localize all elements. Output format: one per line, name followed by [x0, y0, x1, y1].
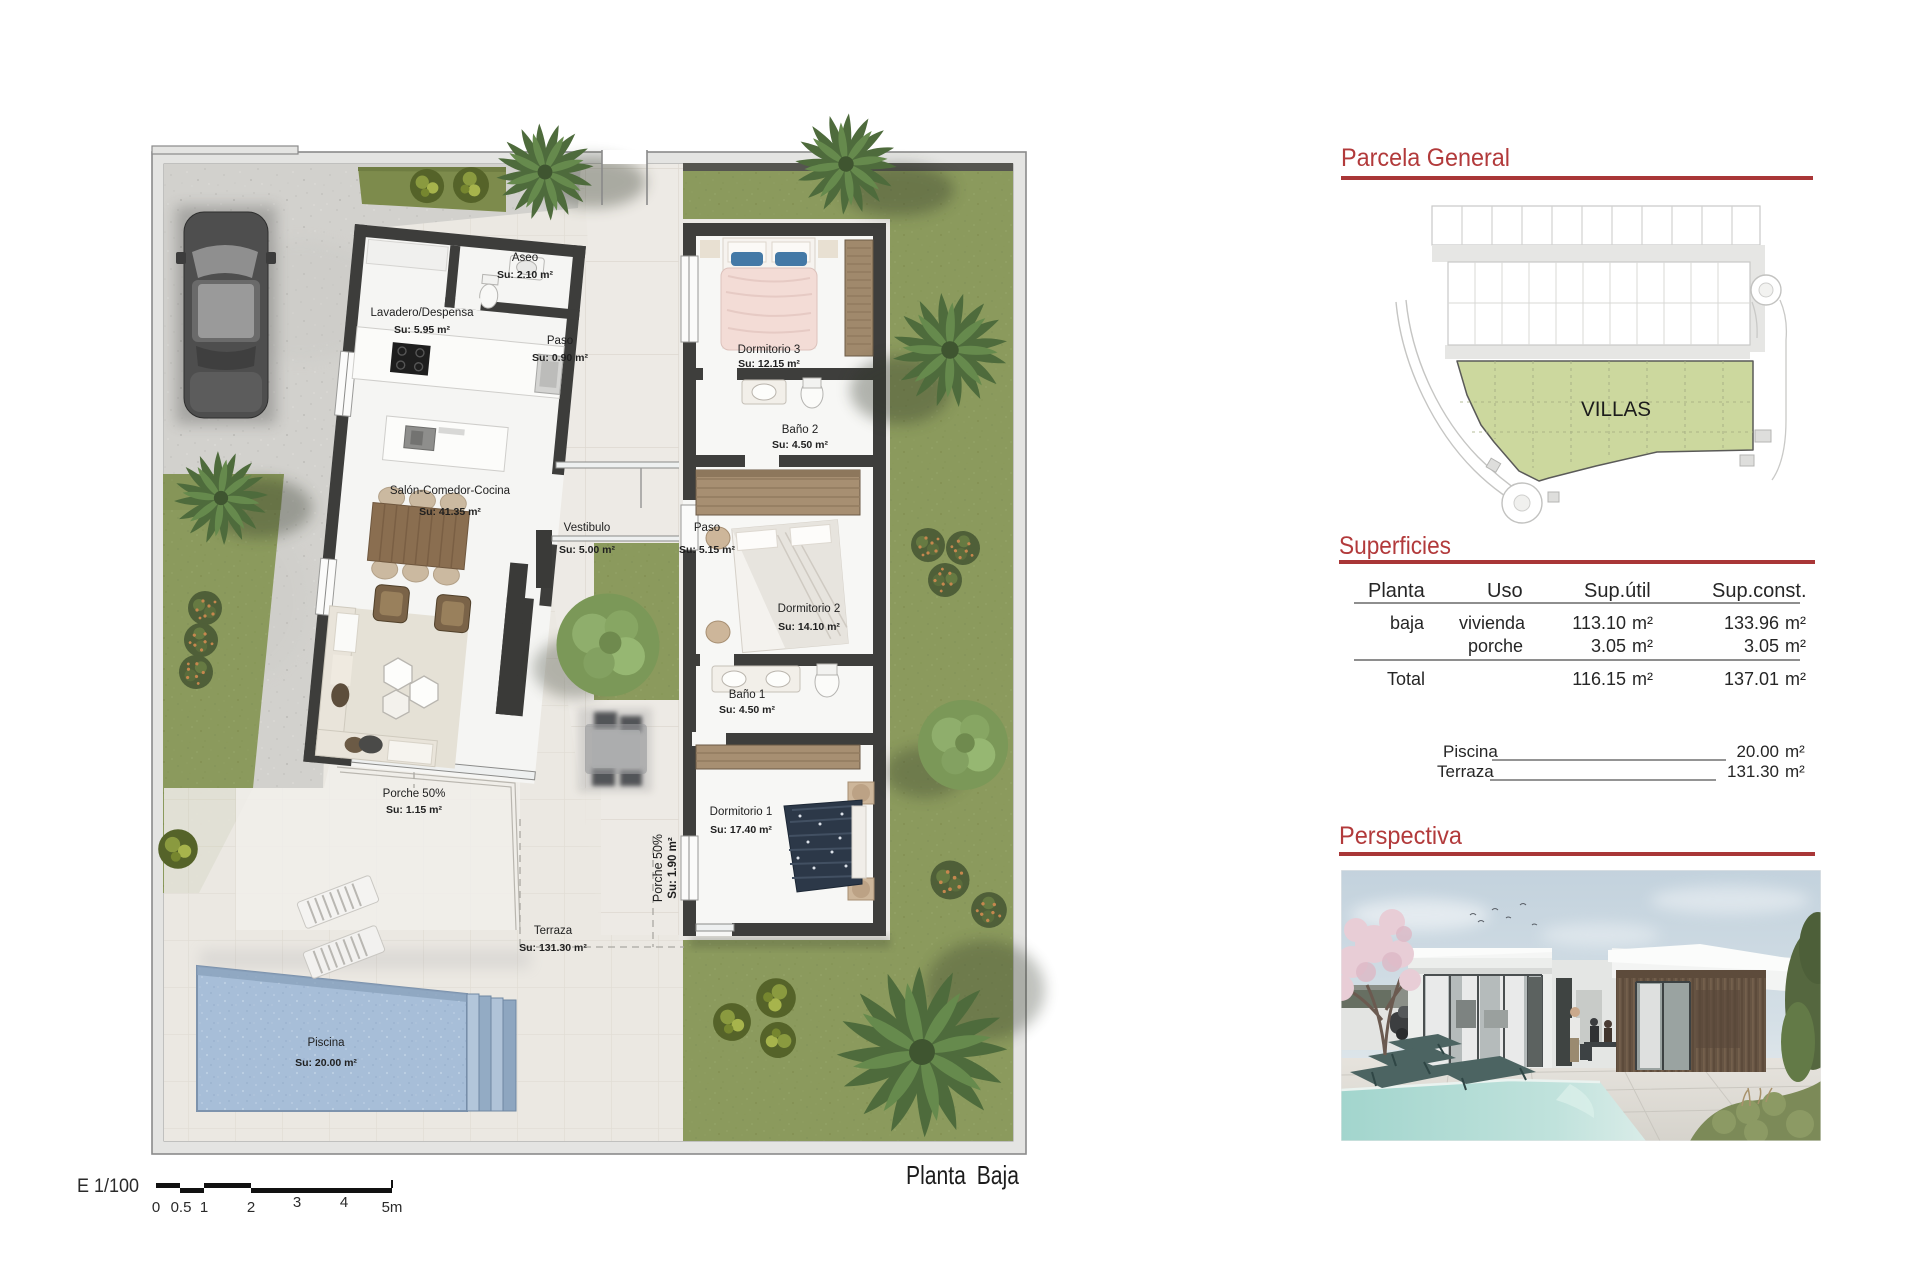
svg-text:E 1/100: E 1/100 — [77, 1176, 139, 1197]
svg-text:m²: m² — [1632, 613, 1653, 633]
svg-text:Su: 12.15 m²: Su: 12.15 m² — [738, 358, 800, 370]
svg-text:Parcela General: Parcela General — [1341, 144, 1510, 172]
svg-text:Su: 2.10 m²: Su: 2.10 m² — [497, 269, 554, 281]
svg-text:Terraza: Terraza — [1437, 762, 1494, 781]
svg-text:Total: Total — [1387, 669, 1425, 689]
svg-text:Uso: Uso — [1487, 580, 1523, 602]
svg-text:Planta Baja: Planta Baja — [906, 1160, 1019, 1190]
svg-text:137.01: 137.01 — [1724, 669, 1779, 689]
svg-text:Su: 0.90 m²: Su: 0.90 m² — [532, 352, 589, 364]
svg-text:113.10: 113.10 — [1572, 613, 1626, 633]
svg-text:0.5: 0.5 — [171, 1199, 192, 1216]
svg-text:vivienda: vivienda — [1459, 613, 1526, 633]
svg-text:133.96: 133.96 — [1724, 613, 1779, 633]
svg-text:Paso: Paso — [694, 522, 720, 534]
svg-text:Su: 4.50 m²: Su: 4.50 m² — [719, 704, 776, 716]
svg-text:m²: m² — [1632, 636, 1653, 656]
svg-text:Planta: Planta — [1368, 580, 1426, 602]
svg-text:Su: 131.30 m²: Su: 131.30 m² — [519, 942, 587, 954]
svg-text:Salón-Comedor-Cocina: Salón-Comedor-Cocina — [390, 485, 511, 497]
svg-text:3.05: 3.05 — [1591, 636, 1626, 656]
svg-text:20.00: 20.00 — [1736, 742, 1779, 761]
svg-text:Porche 50%: Porche 50% — [651, 834, 665, 902]
svg-text:Dormitorio 2: Dormitorio 2 — [778, 603, 841, 615]
svg-text:Piscina: Piscina — [1443, 742, 1498, 761]
svg-text:Porche 50%: Porche 50% — [383, 788, 446, 800]
svg-text:4: 4 — [340, 1194, 348, 1211]
svg-text:Aseo: Aseo — [512, 252, 538, 264]
svg-text:Su: 41.35 m²: Su: 41.35 m² — [419, 506, 481, 518]
svg-text:Paso: Paso — [547, 335, 573, 347]
svg-text:Su: 5.95 m²: Su: 5.95 m² — [394, 324, 451, 336]
svg-text:Dormitorio 3: Dormitorio 3 — [738, 344, 801, 356]
svg-text:5m: 5m — [382, 1199, 403, 1216]
svg-text:m²: m² — [1632, 669, 1653, 689]
svg-text:Superficies: Superficies — [1339, 532, 1451, 560]
svg-text:3: 3 — [293, 1194, 301, 1211]
svg-text:3.05: 3.05 — [1744, 636, 1779, 656]
svg-text:Lavadero/Despensa: Lavadero/Despensa — [371, 307, 475, 319]
svg-text:m²: m² — [1785, 742, 1805, 761]
svg-text:Terraza: Terraza — [534, 925, 573, 937]
svg-text:m²: m² — [1785, 613, 1806, 633]
svg-text:Sup.útil: Sup.útil — [1584, 580, 1651, 602]
svg-text:Su: 1.15 m²: Su: 1.15 m² — [386, 804, 443, 816]
svg-text:m²: m² — [1785, 669, 1806, 689]
svg-text:Baño 1: Baño 1 — [729, 689, 765, 701]
svg-text:Perspectiva: Perspectiva — [1339, 822, 1462, 850]
svg-text:Sup.const.: Sup.const. — [1712, 580, 1807, 602]
svg-text:Su: 5.00 m²: Su: 5.00 m² — [559, 544, 616, 556]
svg-text:Su: 5.15 m²: Su: 5.15 m² — [679, 544, 736, 556]
svg-text:1: 1 — [200, 1199, 208, 1216]
svg-text:Vestibulo: Vestibulo — [564, 522, 611, 534]
svg-text:VILLAS: VILLAS — [1581, 398, 1651, 421]
svg-text:m²: m² — [1785, 636, 1806, 656]
svg-text:131.30: 131.30 — [1727, 762, 1779, 781]
svg-text:Su: 4.50 m²: Su: 4.50 m² — [772, 439, 829, 451]
svg-text:porche: porche — [1468, 636, 1523, 656]
svg-text:baja: baja — [1390, 613, 1425, 633]
svg-text:2: 2 — [247, 1199, 255, 1216]
svg-text:Su: 14.10 m²: Su: 14.10 m² — [778, 621, 840, 633]
svg-text:Su: 1.90 m²: Su: 1.90 m² — [667, 837, 679, 899]
svg-text:0: 0 — [152, 1199, 160, 1216]
svg-text:Su: 20.00 m²: Su: 20.00 m² — [295, 1057, 357, 1069]
svg-text:Baño 2: Baño 2 — [782, 424, 818, 436]
svg-text:m²: m² — [1785, 762, 1805, 781]
svg-text:Dormitorio 1: Dormitorio 1 — [710, 806, 773, 818]
svg-text:Su: 17.40 m²: Su: 17.40 m² — [710, 824, 772, 836]
svg-text:Piscina: Piscina — [307, 1037, 345, 1049]
svg-text:116.15: 116.15 — [1572, 669, 1626, 689]
